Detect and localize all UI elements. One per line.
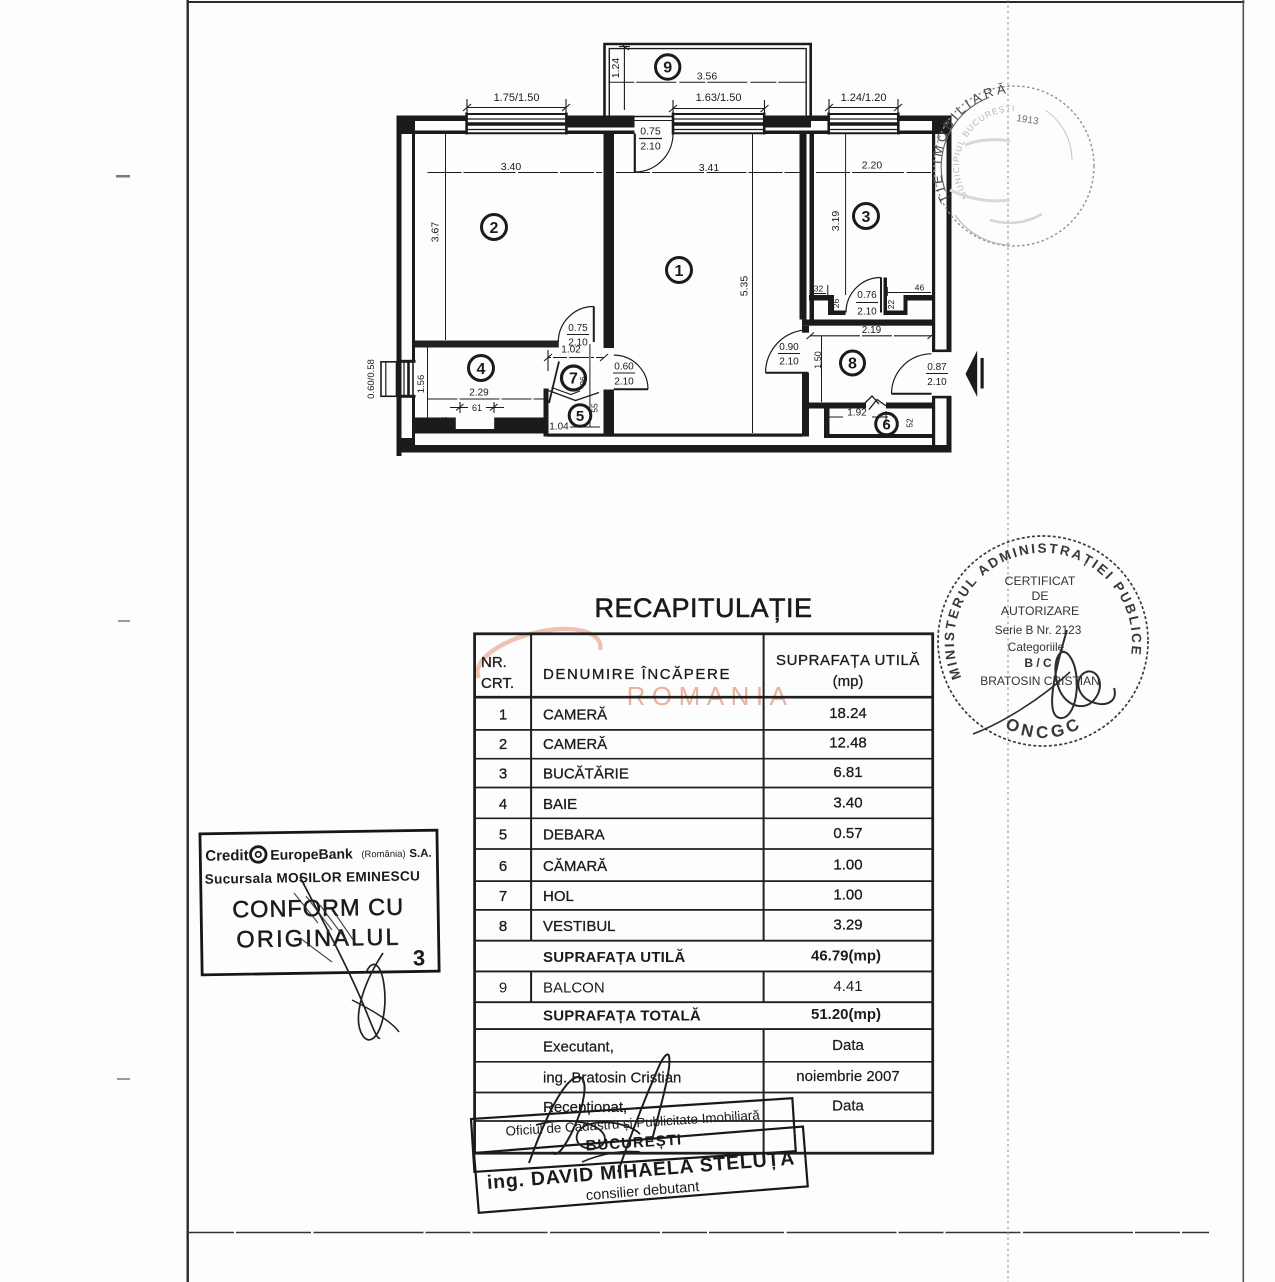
svg-text:CERTIFICAT: CERTIFICAT [1005, 574, 1076, 588]
svg-text:Credit: Credit [205, 847, 249, 865]
svg-text:0.90: 0.90 [779, 342, 799, 353]
svg-text:1.75/1.50: 1.75/1.50 [494, 92, 540, 104]
svg-text:Data: Data [832, 1098, 864, 1115]
svg-text:RECAPITULAȚIE: RECAPITULAȚIE [594, 593, 812, 623]
svg-text:1: 1 [675, 263, 684, 280]
svg-text:3.29: 3.29 [833, 917, 862, 934]
svg-text:46.79(mp): 46.79(mp) [811, 948, 881, 965]
svg-text:2.10: 2.10 [857, 307, 877, 318]
svg-text:4: 4 [499, 796, 507, 813]
svg-text:SUPRAFAȚA UTILĂ: SUPRAFAȚA UTILĂ [543, 949, 685, 966]
svg-text:9: 9 [499, 980, 507, 997]
svg-text:noiembrie 2007: noiembrie 2007 [796, 1068, 899, 1085]
svg-text:VESTIBUL: VESTIBUL [543, 918, 616, 935]
svg-text:5: 5 [499, 827, 507, 844]
svg-text:52: 52 [905, 418, 915, 428]
svg-text:CĂMARĂ: CĂMARĂ [543, 858, 607, 875]
svg-text:NR.: NR. [481, 654, 507, 671]
svg-text:CONFORM CU: CONFORM CU [232, 894, 404, 923]
svg-text:CAMERĂ: CAMERĂ [543, 736, 607, 753]
svg-text:1.24: 1.24 [610, 58, 622, 79]
svg-text:BUCĂTĂRIE: BUCĂTĂRIE [543, 766, 629, 783]
svg-text:46: 46 [915, 283, 925, 293]
svg-text:ing. Bratosin Cristian: ing. Bratosin Cristian [543, 1070, 681, 1087]
svg-text:1.56: 1.56 [416, 375, 427, 394]
svg-text:12.48: 12.48 [829, 735, 867, 752]
svg-text:AUTORIZARE: AUTORIZARE [1001, 604, 1079, 618]
svg-text:0.60/0.58: 0.60/0.58 [366, 359, 377, 399]
svg-text:SUPRAFAȚA TOTALĂ: SUPRAFAȚA TOTALĂ [543, 1008, 701, 1025]
svg-text:1.24/1.20: 1.24/1.20 [841, 92, 887, 104]
svg-text:1.00: 1.00 [833, 857, 862, 874]
svg-text:BAIE: BAIE [543, 796, 577, 813]
svg-text:1.02: 1.02 [561, 345, 581, 356]
svg-text:22: 22 [886, 300, 896, 310]
svg-text:32: 32 [814, 284, 824, 294]
svg-text:(mp): (mp) [833, 673, 864, 690]
svg-text:8: 8 [848, 356, 857, 373]
svg-text:6.81: 6.81 [833, 764, 862, 781]
svg-text:28: 28 [440, 417, 450, 427]
svg-text:7: 7 [499, 888, 507, 905]
svg-text:0.75: 0.75 [640, 126, 661, 138]
svg-text:5.35: 5.35 [739, 276, 751, 297]
svg-text:5: 5 [576, 408, 584, 425]
svg-text:6: 6 [499, 858, 507, 875]
svg-text:Executant,: Executant, [543, 1039, 614, 1056]
svg-text:4: 4 [477, 361, 486, 378]
svg-text:2: 2 [499, 736, 507, 753]
svg-text:2.10: 2.10 [640, 141, 661, 153]
svg-text:1.04: 1.04 [549, 422, 569, 433]
svg-text:3.40: 3.40 [833, 795, 862, 812]
svg-text:0.76: 0.76 [857, 290, 877, 301]
svg-text:(România): (România) [361, 849, 406, 861]
svg-text:1.50: 1.50 [813, 351, 823, 369]
svg-text:1.00: 1.00 [833, 887, 862, 904]
svg-text:3.56: 3.56 [697, 71, 718, 83]
svg-text:2: 2 [490, 220, 499, 237]
svg-text:3.19: 3.19 [830, 211, 842, 232]
svg-text:3: 3 [413, 945, 426, 970]
svg-text:DENUMIRE ÎNCĂPERE: DENUMIRE ÎNCĂPERE [543, 666, 731, 683]
svg-text:ORIGINALUL: ORIGINALUL [236, 924, 401, 953]
svg-text:2.10: 2.10 [779, 357, 799, 368]
svg-text:B / C: B / C [1024, 656, 1052, 670]
svg-text:CAMERĂ: CAMERĂ [543, 707, 607, 724]
svg-text:3.41: 3.41 [699, 162, 720, 174]
svg-text:0.87: 0.87 [927, 362, 947, 373]
svg-text:2.29: 2.29 [469, 388, 489, 399]
svg-text:3: 3 [499, 766, 507, 783]
svg-text:2.10: 2.10 [614, 377, 634, 388]
svg-text:CRT.: CRT. [481, 675, 514, 692]
svg-text:S.A.: S.A. [409, 848, 432, 860]
svg-text:1.63/1.50: 1.63/1.50 [696, 92, 742, 104]
svg-text:1: 1 [499, 707, 507, 724]
svg-text:9: 9 [663, 60, 672, 77]
svg-text:1.92: 1.92 [847, 408, 867, 419]
svg-text:61: 61 [472, 403, 482, 413]
svg-text:DE: DE [1032, 589, 1049, 603]
svg-text:2.19: 2.19 [862, 325, 882, 336]
svg-text:26: 26 [831, 299, 841, 309]
svg-text:SUPRAFAȚA UTILĂ: SUPRAFAȚA UTILĂ [776, 652, 920, 669]
svg-text:8: 8 [499, 918, 507, 935]
svg-text:DEBARA: DEBARA [543, 827, 605, 844]
svg-text:4.41: 4.41 [833, 978, 862, 995]
svg-text:HOL: HOL [543, 888, 574, 905]
svg-text:2.10: 2.10 [927, 377, 947, 388]
svg-text:0.57: 0.57 [833, 825, 862, 842]
svg-text:Categoriile: Categoriile [1008, 640, 1065, 654]
svg-text:3.67: 3.67 [430, 222, 442, 243]
svg-text:51.20(mp): 51.20(mp) [811, 1006, 881, 1023]
svg-text:Data: Data [832, 1037, 864, 1054]
svg-text:96: 96 [578, 376, 588, 386]
svg-text:0.75: 0.75 [568, 323, 588, 334]
svg-text:EuropeBank: EuropeBank [270, 845, 353, 862]
svg-text:BALCON: BALCON [543, 980, 605, 997]
svg-text:18.24: 18.24 [829, 705, 867, 722]
svg-text:7: 7 [569, 371, 578, 388]
svg-text:3.40: 3.40 [501, 161, 522, 173]
svg-text:55: 55 [590, 403, 600, 413]
svg-text:Serie B Nr. 2123: Serie B Nr. 2123 [995, 623, 1082, 637]
svg-text:3: 3 [862, 209, 871, 226]
svg-text:0.60: 0.60 [614, 362, 634, 373]
svg-text:2.20: 2.20 [862, 160, 883, 172]
